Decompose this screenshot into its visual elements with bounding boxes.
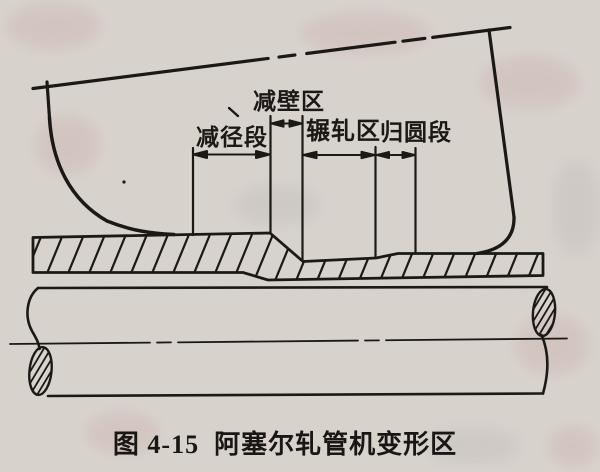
mandrel-top-edge	[38, 287, 547, 288]
stray-mark	[229, 108, 238, 116]
roll-exit-curve	[477, 217, 514, 254]
figure-caption: 图 4-15 阿塞尔轧管机变形区	[85, 431, 485, 460]
arrowhead	[403, 152, 415, 158]
arrowhead	[272, 120, 284, 126]
mandrel-left-break-hatching	[0, 335, 122, 410]
mandrel-bottom-edge	[48, 394, 543, 397]
mandrel-left-break-curve	[27, 288, 39, 349]
arrowhead	[290, 120, 302, 126]
roll-right-edge	[489, 30, 514, 217]
label-rolling-zone: 辗轧区	[306, 120, 381, 144]
mandrel-right-break-curve	[542, 335, 548, 394]
assel-mill-diagram	[0, 0, 600, 472]
label-wall-reduction-zone: 减壁区	[253, 90, 325, 113]
arrowhead	[194, 151, 208, 158]
figure-scan: 减壁区 减径段 辗轧区 归圆段 图 4-15 阿塞尔轧管机变形区	[0, 0, 600, 472]
ink-speck	[122, 180, 125, 183]
mandrel-centerline	[10, 339, 567, 345]
tube-shell-section	[0, 210, 600, 310]
mandrel-bar	[0, 275, 600, 410]
roll-entry-curve	[50, 118, 175, 235]
label-diameter-reduction-section: 减径段	[196, 126, 268, 149]
label-rounding-section: 归圆段	[380, 121, 452, 144]
arrowhead	[377, 152, 389, 158]
arrowhead	[256, 151, 270, 158]
arrowhead	[304, 152, 317, 158]
roll-top-edge	[33, 28, 510, 89]
arrowhead	[362, 152, 375, 158]
